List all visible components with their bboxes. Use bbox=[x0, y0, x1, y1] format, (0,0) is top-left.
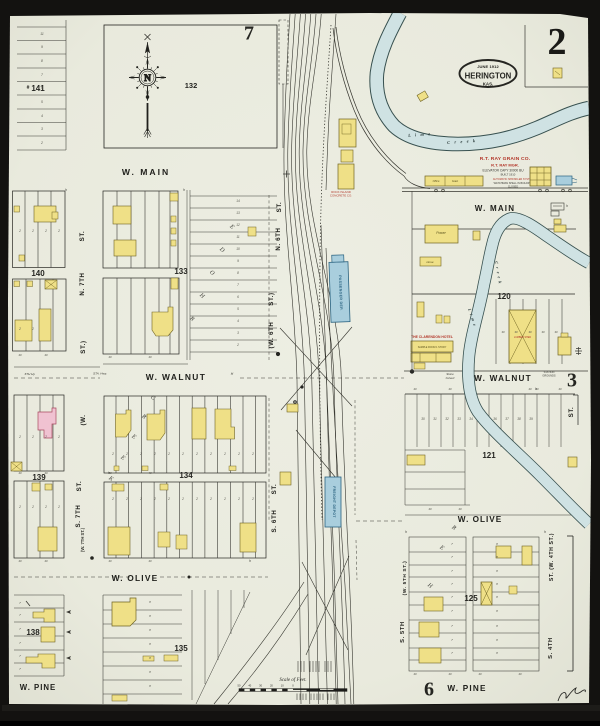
svg-text:3: 3 bbox=[567, 370, 577, 392]
svg-text:40: 40 bbox=[535, 387, 539, 391]
svg-text:7: 7 bbox=[41, 73, 43, 77]
svg-text:ST.): ST.) bbox=[268, 292, 275, 305]
svg-text:2: 2 bbox=[251, 497, 254, 501]
svg-text:2: 2 bbox=[125, 452, 128, 456]
svg-text:40: 40 bbox=[448, 387, 452, 391]
svg-text:2: 2 bbox=[167, 452, 170, 456]
svg-text:2: 2 bbox=[40, 141, 43, 145]
svg-text:2: 2 bbox=[223, 497, 226, 501]
svg-text:4: 4 bbox=[41, 114, 43, 118]
svg-text:CONCRETE CO.: CONCRETE CO. bbox=[330, 194, 352, 198]
svg-text:141: 141 bbox=[31, 84, 45, 93]
svg-text:3: 3 bbox=[41, 127, 43, 131]
svg-text:2: 2 bbox=[209, 497, 212, 501]
svg-text:W. PINE: W. PINE bbox=[447, 684, 486, 693]
svg-text:120: 120 bbox=[497, 292, 511, 301]
svg-text:W. OLIVE: W. OLIVE bbox=[458, 515, 502, 524]
svg-text:2: 2 bbox=[44, 229, 47, 233]
svg-text:6: 6 bbox=[41, 86, 43, 90]
svg-text:h: h bbox=[405, 530, 407, 534]
svg-text:3: 3 bbox=[237, 331, 239, 335]
svg-text:W. WALNUT: W. WALNUT bbox=[146, 372, 207, 382]
svg-text:6: 6 bbox=[237, 295, 239, 299]
svg-text:38: 38 bbox=[517, 417, 521, 421]
svg-text:2: 2 bbox=[195, 497, 198, 501]
svg-text:(W.: (W. bbox=[80, 414, 87, 425]
svg-text:Culvert: Culvert bbox=[446, 376, 455, 380]
svg-text:#: # bbox=[27, 85, 30, 91]
svg-text:N. 6TH: N. 6TH bbox=[275, 227, 282, 250]
svg-text:W. PINE: W. PINE bbox=[20, 683, 56, 692]
svg-text:40: 40 bbox=[18, 353, 22, 357]
svg-text:40: 40 bbox=[448, 672, 452, 676]
svg-text:N: N bbox=[144, 74, 151, 84]
svg-text:2: 2 bbox=[31, 435, 34, 439]
svg-text:ST.: ST. bbox=[271, 484, 278, 495]
svg-text:R.T. RAY MGR.: R.T. RAY MGR. bbox=[491, 163, 519, 168]
svg-text:133: 133 bbox=[174, 267, 188, 276]
svg-text:STATION: STATION bbox=[544, 370, 555, 374]
svg-text:2: 2 bbox=[548, 21, 567, 63]
svg-text:2: 2 bbox=[251, 452, 254, 456]
svg-text:36: 36 bbox=[493, 417, 497, 421]
svg-text:2: 2 bbox=[31, 229, 34, 233]
svg-text:4: 4 bbox=[237, 319, 239, 323]
svg-text:Power: Power bbox=[436, 231, 446, 235]
svg-text:30: 30 bbox=[501, 330, 505, 334]
svg-text:5: 5 bbox=[237, 307, 239, 311]
svg-text:R.T. RAY GRAIN CO.: R.T. RAY GRAIN CO. bbox=[480, 156, 531, 162]
svg-text:W. MAIN: W. MAIN bbox=[475, 204, 515, 213]
svg-text:37: 37 bbox=[505, 417, 509, 421]
svg-text:6TH Hy.: 6TH Hy. bbox=[25, 372, 36, 376]
svg-text:2: 2 bbox=[223, 452, 226, 456]
svg-text:2: 2 bbox=[31, 327, 34, 331]
svg-text:2: 2 bbox=[236, 343, 239, 347]
svg-text:W. OLIVE: W. OLIVE bbox=[112, 573, 159, 583]
svg-text:30: 30 bbox=[554, 330, 558, 334]
svg-text:2: 2 bbox=[18, 505, 21, 509]
svg-text:Scale of Feet.: Scale of Feet. bbox=[279, 678, 306, 683]
svg-text:32: 32 bbox=[445, 417, 449, 421]
svg-text:40: 40 bbox=[413, 672, 417, 676]
svg-text:135: 135 bbox=[174, 644, 188, 653]
svg-text:Office: Office bbox=[433, 179, 440, 183]
svg-text:30: 30 bbox=[528, 330, 532, 334]
svg-text:h: h bbox=[566, 204, 568, 208]
svg-text:121: 121 bbox=[482, 451, 496, 460]
svg-text:9: 9 bbox=[41, 45, 43, 49]
svg-text:Grain: Grain bbox=[452, 179, 459, 183]
svg-text:40: 40 bbox=[148, 559, 152, 563]
svg-text:ST.: ST. bbox=[276, 202, 283, 213]
svg-text:2: 2 bbox=[167, 497, 170, 501]
svg-text:31: 31 bbox=[433, 417, 437, 421]
svg-text:h: h bbox=[65, 188, 67, 192]
svg-text:2: 2 bbox=[44, 505, 47, 509]
svg-text:40: 40 bbox=[518, 672, 522, 676]
svg-text:2: 2 bbox=[181, 452, 184, 456]
svg-text:30: 30 bbox=[541, 330, 545, 334]
svg-text:134: 134 bbox=[179, 471, 193, 480]
svg-text:Hose: Hose bbox=[426, 260, 433, 264]
svg-text:40: 40 bbox=[478, 672, 482, 676]
svg-text:2: 2 bbox=[195, 452, 198, 456]
svg-text:ST.: ST. bbox=[79, 231, 86, 242]
svg-text:2: 2 bbox=[111, 497, 114, 501]
svg-text:132: 132 bbox=[185, 81, 198, 90]
svg-text:40: 40 bbox=[148, 471, 152, 475]
svg-text:HERINGTON: HERINGTON bbox=[465, 72, 512, 81]
svg-text:11: 11 bbox=[236, 235, 240, 239]
svg-text:6: 6 bbox=[424, 679, 434, 701]
svg-text:30: 30 bbox=[514, 330, 518, 334]
svg-text:40: 40 bbox=[108, 559, 112, 563]
svg-text:40: 40 bbox=[413, 387, 417, 391]
svg-text:ST.: ST. bbox=[76, 481, 83, 492]
svg-text:h: h bbox=[249, 559, 251, 563]
svg-text:40: 40 bbox=[44, 471, 48, 475]
svg-text:W. WALNUT: W. WALNUT bbox=[474, 374, 532, 383]
svg-text:2: 2 bbox=[237, 497, 240, 501]
svg-text:THE CLARENDON HOTEL: THE CLARENDON HOTEL bbox=[411, 335, 453, 339]
svg-text:STA. Hwy.: STA. Hwy. bbox=[93, 372, 107, 376]
svg-text:(W. 5TH ST.): (W. 5TH ST.) bbox=[402, 561, 408, 596]
svg-text:2: 2 bbox=[31, 505, 34, 509]
svg-text:W. MAIN: W. MAIN bbox=[122, 167, 170, 177]
svg-text:2: 2 bbox=[111, 452, 114, 456]
svg-text:40: 40 bbox=[458, 507, 462, 511]
svg-text:(W. 7TH ST.): (W. 7TH ST.) bbox=[80, 527, 85, 552]
svg-text:S. 5TH: S. 5TH bbox=[400, 621, 406, 643]
svg-text:S. 4TH: S. 4TH bbox=[548, 637, 554, 659]
svg-text:2: 2 bbox=[57, 229, 60, 233]
svg-text:7: 7 bbox=[237, 283, 239, 287]
svg-text:2: 2 bbox=[139, 452, 142, 456]
svg-text:2: 2 bbox=[209, 452, 212, 456]
svg-text:40: 40 bbox=[108, 355, 112, 359]
svg-text:LUMBER SHED: LUMBER SHED bbox=[514, 336, 532, 339]
svg-text:2: 2 bbox=[18, 435, 21, 439]
svg-text:34: 34 bbox=[469, 417, 473, 421]
svg-text:2: 2 bbox=[181, 497, 184, 501]
svg-text:S. 6TH: S. 6TH bbox=[271, 510, 278, 533]
svg-text:2: 2 bbox=[125, 497, 128, 501]
svg-text:2: 2 bbox=[153, 452, 156, 456]
svg-text:CLOSED: CLOSED bbox=[508, 186, 518, 189]
svg-text:ST.): ST.) bbox=[80, 340, 87, 353]
svg-text:2: 2 bbox=[44, 435, 47, 439]
svg-text:138: 138 bbox=[26, 628, 40, 637]
svg-text:h: h bbox=[183, 188, 185, 192]
svg-text:2: 2 bbox=[18, 229, 21, 233]
svg-text:(W. 6TH: (W. 6TH bbox=[268, 322, 275, 349]
svg-text:FREIGHT DEPOT: FREIGHT DEPOT bbox=[332, 486, 336, 518]
svg-text:14: 14 bbox=[236, 199, 240, 203]
svg-text:30: 30 bbox=[421, 417, 425, 421]
svg-text:8: 8 bbox=[41, 59, 43, 63]
svg-text:8: 8 bbox=[237, 271, 239, 275]
svg-text:2: 2 bbox=[153, 497, 156, 501]
svg-text:ST. (W. 4TH ST.): ST. (W. 4TH ST.) bbox=[549, 533, 555, 581]
svg-text:S. 7TH: S. 7TH bbox=[75, 505, 82, 528]
svg-text:2: 2 bbox=[237, 452, 240, 456]
svg-text:KAS.: KAS. bbox=[483, 82, 494, 87]
svg-text:h: h bbox=[544, 530, 546, 534]
svg-text:SAMPLE ROOM 1 STORY: SAMPLE ROOM 1 STORY bbox=[418, 346, 447, 349]
svg-text:N. 7TH: N. 7TH bbox=[79, 272, 86, 295]
svg-text:10: 10 bbox=[236, 247, 240, 251]
svg-text:125: 125 bbox=[464, 594, 478, 603]
svg-text:40: 40 bbox=[44, 559, 48, 563]
svg-text:ST.: ST. bbox=[568, 407, 575, 418]
svg-text:40: 40 bbox=[558, 387, 562, 391]
svg-text:13: 13 bbox=[236, 211, 240, 215]
svg-text:AUTOMATIC SPRINKLER SYSTEM: AUTOMATIC SPRINKLER SYSTEM bbox=[493, 178, 533, 181]
svg-text:140: 140 bbox=[31, 269, 45, 278]
svg-text:7: 7 bbox=[244, 23, 254, 45]
svg-text:40: 40 bbox=[148, 355, 152, 359]
svg-text:2: 2 bbox=[139, 497, 142, 501]
svg-text:40: 40 bbox=[108, 471, 112, 475]
svg-text:2: 2 bbox=[57, 505, 60, 509]
svg-text:12: 12 bbox=[236, 223, 240, 227]
svg-text:11: 11 bbox=[40, 32, 44, 36]
svg-text:BUILT 1910: BUILT 1910 bbox=[501, 173, 516, 177]
svg-text:33: 33 bbox=[457, 417, 461, 421]
svg-text:40: 40 bbox=[18, 559, 22, 563]
svg-text:2: 2 bbox=[18, 327, 21, 331]
svg-text:40: 40 bbox=[44, 353, 48, 357]
svg-text:5: 5 bbox=[41, 100, 43, 104]
svg-text:40: 40 bbox=[18, 471, 22, 475]
svg-text:9: 9 bbox=[237, 259, 239, 263]
svg-text:40: 40 bbox=[528, 387, 532, 391]
svg-text:40: 40 bbox=[428, 507, 432, 511]
svg-text:39: 39 bbox=[529, 417, 533, 421]
svg-text:JUNE 1912: JUNE 1912 bbox=[477, 64, 499, 69]
svg-text:2: 2 bbox=[57, 435, 60, 439]
svg-text:GROUNDS: GROUNDS bbox=[542, 374, 556, 378]
